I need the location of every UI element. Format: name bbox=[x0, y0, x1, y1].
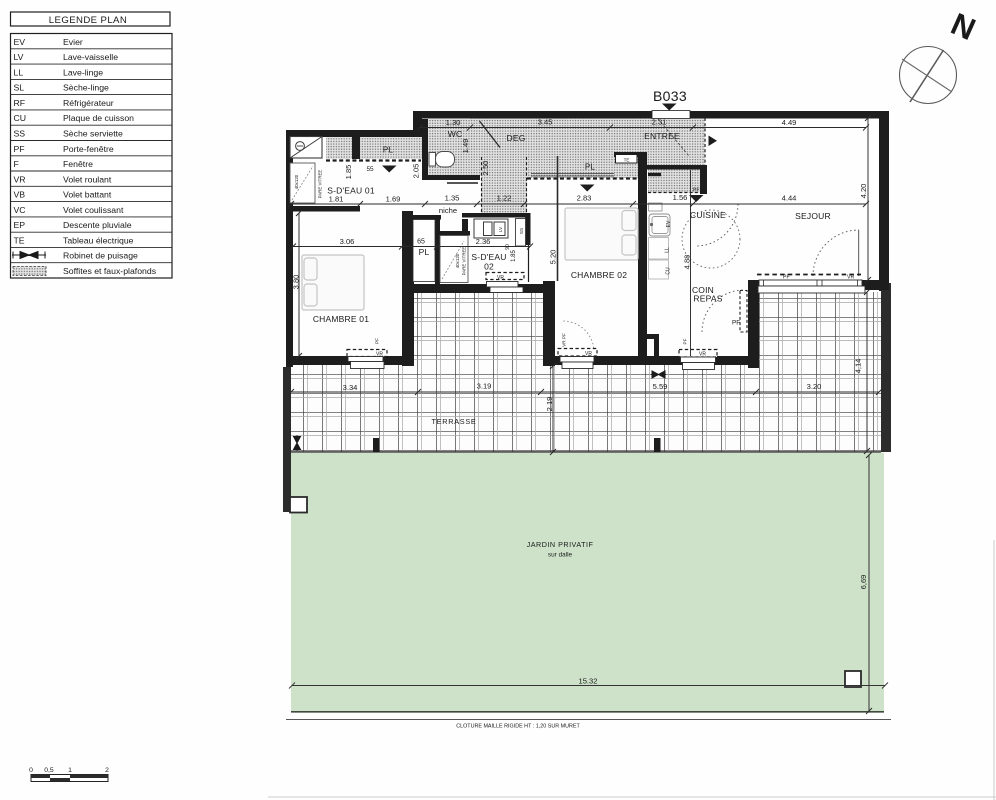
svg-text:EV: EV bbox=[666, 220, 672, 227]
svg-text:CHAMBRE 01: CHAMBRE 01 bbox=[313, 314, 369, 324]
svg-text:PF: PF bbox=[693, 188, 699, 194]
svg-text:VB: VB bbox=[14, 190, 26, 200]
svg-text:sur dalle: sur dalle bbox=[548, 552, 573, 559]
svg-text:1.81: 1.81 bbox=[329, 195, 344, 204]
svg-text:2.05: 2.05 bbox=[412, 164, 421, 179]
svg-text:1: 1 bbox=[68, 767, 72, 774]
svg-text:1.22: 1.22 bbox=[497, 194, 512, 203]
svg-text:VC: VC bbox=[14, 205, 26, 215]
svg-text:CLOTURE MAILLE RIGIDE HT : 1,2: CLOTURE MAILLE RIGIDE HT : 1,20 SUR MURE… bbox=[456, 724, 580, 730]
svg-text:02: 02 bbox=[484, 262, 494, 272]
svg-text:2.36: 2.36 bbox=[476, 237, 491, 246]
svg-text:VR: VR bbox=[497, 275, 504, 281]
svg-text:VR: VR bbox=[585, 351, 592, 357]
svg-text:Lave-vaisselle: Lave-vaisselle bbox=[63, 52, 118, 62]
svg-text:VR: VR bbox=[376, 352, 383, 358]
svg-text:Volet battant: Volet battant bbox=[63, 190, 112, 200]
svg-text:1.85: 1.85 bbox=[344, 165, 353, 180]
svg-text:3.19: 3.19 bbox=[477, 382, 492, 391]
svg-text:ENTREE: ENTREE bbox=[644, 131, 680, 141]
svg-text:TE: TE bbox=[624, 158, 630, 163]
svg-text:4,14: 4,14 bbox=[854, 359, 863, 374]
svg-text:PL: PL bbox=[419, 247, 430, 257]
svg-text:Plaque de cuisson: Plaque de cuisson bbox=[63, 113, 134, 123]
svg-text:Réfrigérateur: Réfrigérateur bbox=[63, 98, 114, 108]
svg-text:LL: LL bbox=[14, 67, 24, 77]
svg-text:CU: CU bbox=[14, 113, 27, 123]
svg-text:5.20: 5.20 bbox=[549, 250, 558, 265]
svg-text:55: 55 bbox=[366, 166, 374, 173]
svg-text:Lave-linge: Lave-linge bbox=[63, 67, 103, 77]
svg-text:3.45: 3.45 bbox=[538, 118, 553, 127]
svg-text:Evier: Evier bbox=[63, 37, 83, 47]
svg-text:PARE VITREE: PARE VITREE bbox=[462, 247, 467, 276]
svg-text:PL: PL bbox=[585, 163, 596, 172]
svg-text:1.69: 1.69 bbox=[386, 195, 401, 204]
svg-text:2.50: 2.50 bbox=[481, 161, 490, 176]
svg-text:0,5: 0,5 bbox=[44, 767, 54, 774]
svg-text:2.31: 2.31 bbox=[652, 118, 667, 127]
svg-text:WC: WC bbox=[448, 129, 463, 139]
svg-text:niche: niche bbox=[439, 206, 457, 215]
svg-text:SS: SS bbox=[519, 228, 524, 234]
svg-text:Soffites et faux-plafonds: Soffites et faux-plafonds bbox=[63, 266, 157, 276]
svg-text:4.20: 4.20 bbox=[859, 184, 868, 199]
svg-text:VR PF: VR PF bbox=[562, 333, 567, 347]
svg-text:2.19: 2.19 bbox=[545, 397, 554, 412]
svg-text:6,69: 6,69 bbox=[859, 575, 868, 590]
svg-text:EP: EP bbox=[14, 220, 26, 230]
svg-text:S-D'EAU 01: S-D'EAU 01 bbox=[327, 186, 375, 196]
svg-text:40x120: 40x120 bbox=[455, 253, 460, 268]
svg-text:Robinet de puisage: Robinet de puisage bbox=[63, 251, 138, 261]
svg-text:F: F bbox=[14, 159, 19, 169]
svg-text:VR: VR bbox=[14, 174, 26, 184]
svg-text:PARE VITREE: PARE VITREE bbox=[318, 170, 323, 199]
svg-text:S-D'EAU: S-D'EAU bbox=[471, 252, 506, 262]
svg-text:LEGENDE PLAN: LEGENDE PLAN bbox=[49, 15, 127, 26]
svg-text:4.88: 4.88 bbox=[683, 255, 692, 270]
svg-text:PF: PF bbox=[375, 338, 380, 344]
svg-text:PF: PF bbox=[14, 144, 25, 154]
svg-text:SL: SL bbox=[14, 83, 25, 93]
svg-text:SEJOUR: SEJOUR bbox=[795, 211, 831, 221]
svg-text:1.30: 1.30 bbox=[446, 118, 461, 127]
svg-text:LV: LV bbox=[14, 52, 24, 62]
svg-text:0: 0 bbox=[29, 767, 33, 774]
svg-text:PF: PF bbox=[683, 338, 688, 344]
svg-text:5.59: 5.59 bbox=[653, 382, 668, 391]
svg-text:65: 65 bbox=[417, 239, 425, 246]
svg-text:1.56: 1.56 bbox=[673, 193, 688, 202]
svg-text:Tableau électrique: Tableau électrique bbox=[63, 235, 134, 245]
svg-text:EV: EV bbox=[14, 37, 26, 47]
svg-text:CU: CU bbox=[666, 267, 672, 275]
svg-text:PL: PL bbox=[383, 146, 394, 155]
svg-text:40x120: 40x120 bbox=[294, 174, 299, 189]
svg-text:CHAMBRE 02: CHAMBRE 02 bbox=[571, 270, 627, 280]
svg-text:RF: RF bbox=[14, 98, 26, 108]
svg-text:15.32: 15.32 bbox=[578, 677, 597, 686]
svg-text:Volet roulant: Volet roulant bbox=[63, 174, 112, 184]
svg-text:1.49: 1.49 bbox=[461, 139, 470, 154]
svg-text:4.44: 4.44 bbox=[782, 194, 797, 203]
svg-text:SS: SS bbox=[14, 129, 26, 139]
svg-text:2: 2 bbox=[105, 767, 109, 774]
svg-text:3.34: 3.34 bbox=[343, 383, 358, 392]
svg-text:Sèche serviette: Sèche serviette bbox=[63, 129, 123, 139]
svg-text:Volet coulissant: Volet coulissant bbox=[63, 205, 124, 215]
svg-text:90: 90 bbox=[505, 244, 511, 250]
svg-text:Fenêtre: Fenêtre bbox=[63, 159, 93, 169]
svg-text:3.20: 3.20 bbox=[807, 382, 822, 391]
svg-text:TERRASSE: TERRASSE bbox=[432, 417, 477, 426]
svg-text:VR: VR bbox=[847, 274, 854, 280]
svg-text:JARDIN PRIVATIF: JARDIN PRIVATIF bbox=[527, 540, 594, 549]
svg-text:1.85: 1.85 bbox=[511, 250, 517, 262]
svg-text:REPAS: REPAS bbox=[693, 294, 722, 304]
svg-text:TE: TE bbox=[14, 235, 25, 245]
svg-text:PF: PF bbox=[783, 275, 790, 281]
svg-text:3.06: 3.06 bbox=[340, 237, 355, 246]
svg-text:DEG: DEG bbox=[506, 133, 525, 143]
svg-text:1.35: 1.35 bbox=[445, 194, 460, 203]
svg-text:Descente pluviale: Descente pluviale bbox=[63, 220, 132, 230]
svg-text:PF: PF bbox=[732, 320, 740, 327]
svg-text:LL: LL bbox=[665, 247, 671, 253]
svg-text:3.80: 3.80 bbox=[292, 275, 301, 290]
svg-text:Porte-fenêtre: Porte-fenêtre bbox=[63, 144, 114, 154]
svg-text:4.49: 4.49 bbox=[782, 118, 797, 127]
svg-text:VR: VR bbox=[699, 352, 706, 358]
svg-text:2.83: 2.83 bbox=[577, 194, 592, 203]
svg-text:Sèche-linge: Sèche-linge bbox=[63, 83, 109, 93]
svg-text:CUISINE: CUISINE bbox=[690, 210, 726, 220]
svg-text:B033: B033 bbox=[653, 88, 687, 104]
